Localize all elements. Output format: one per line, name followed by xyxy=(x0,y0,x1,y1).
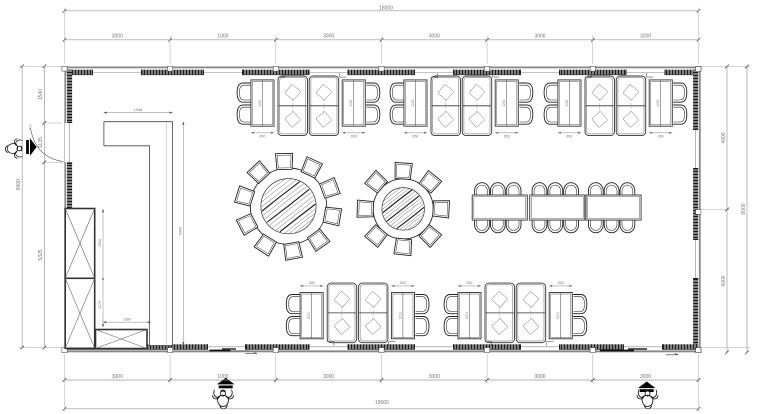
svg-text:8000: 8000 xyxy=(16,179,22,190)
svg-text:3000: 3000 xyxy=(112,34,123,40)
svg-text:1000: 1000 xyxy=(217,374,228,380)
svg-text:18000: 18000 xyxy=(379,5,393,11)
svg-text:3000: 3000 xyxy=(112,374,123,380)
svg-text:18000: 18000 xyxy=(375,400,389,406)
svg-text:3000: 3000 xyxy=(429,34,440,40)
svg-text:1135: 1135 xyxy=(38,137,44,148)
svg-text:2000: 2000 xyxy=(98,239,102,247)
svg-text:3000: 3000 xyxy=(323,374,334,380)
svg-text:3000: 3000 xyxy=(323,34,334,40)
svg-text:1000: 1000 xyxy=(217,34,228,40)
svg-text:5325: 5325 xyxy=(38,249,44,260)
svg-text:4000: 4000 xyxy=(721,275,727,286)
svg-text:3000: 3000 xyxy=(429,374,440,380)
svg-text:8000: 8000 xyxy=(741,203,747,214)
svg-text:1540: 1540 xyxy=(38,89,44,100)
svg-text:3000: 3000 xyxy=(640,374,651,380)
svg-text:1370: 1370 xyxy=(98,301,102,309)
svg-text:4000: 4000 xyxy=(721,132,727,143)
svg-text:1500: 1500 xyxy=(123,317,131,321)
svg-text:1948: 1948 xyxy=(134,108,142,112)
svg-text:3000: 3000 xyxy=(534,374,545,380)
svg-text:3000: 3000 xyxy=(534,34,545,40)
svg-text:6300: 6300 xyxy=(178,227,182,235)
svg-text:3000: 3000 xyxy=(640,34,651,40)
